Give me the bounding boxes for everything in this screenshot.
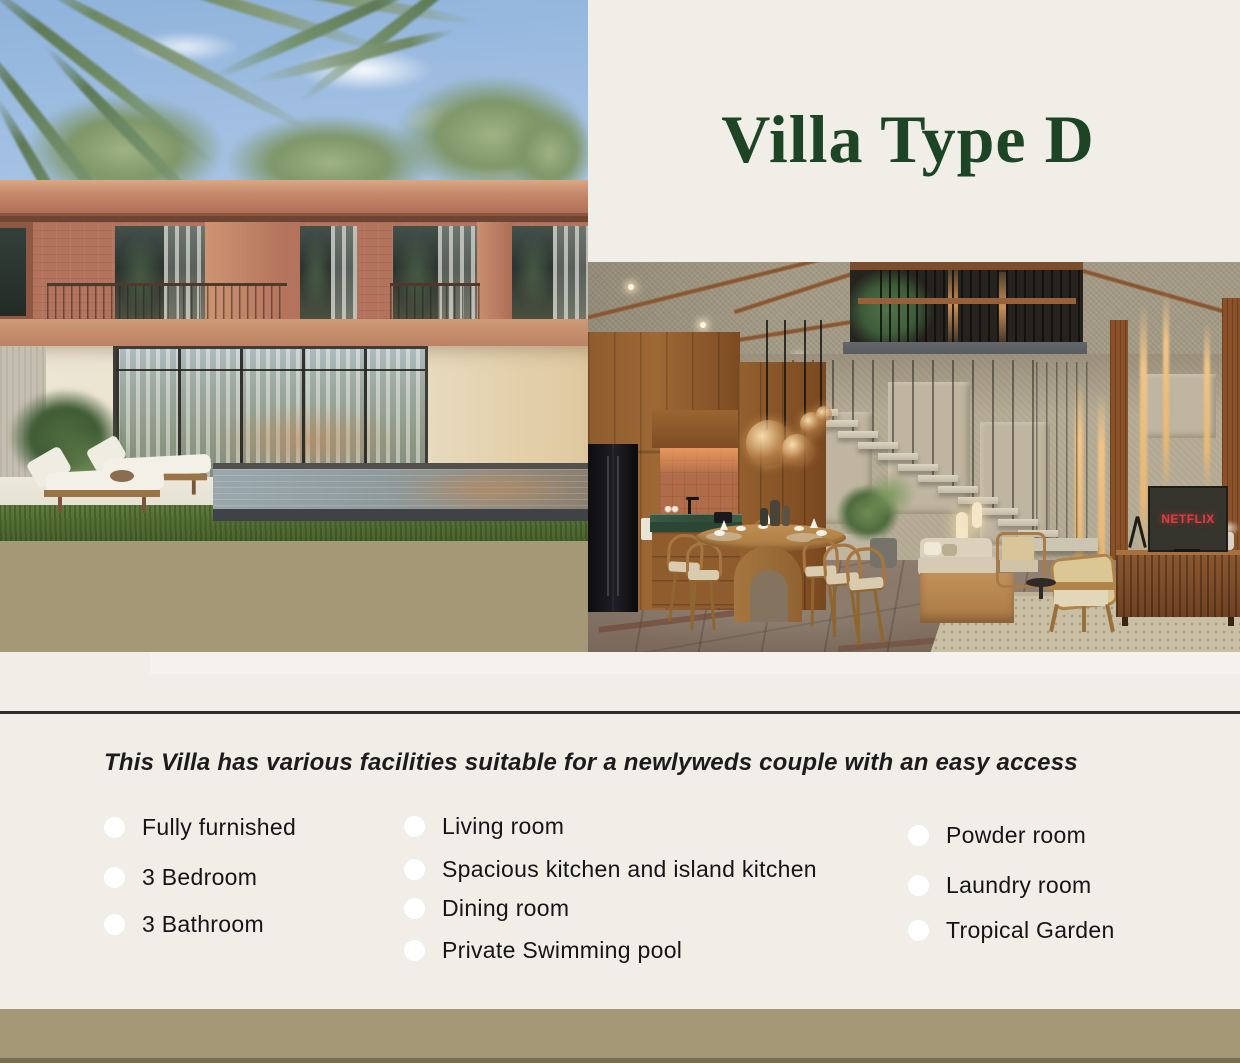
facility-label: Living room [442,813,564,840]
bullet-icon [908,920,929,941]
bullet-icon [908,875,929,896]
kitchen-upper-cabinet [652,410,738,448]
bullet-icon [104,817,125,838]
dinnerware [736,526,746,531]
balcony-railing [390,283,480,322]
stair-step [898,464,938,471]
bullet-icon [908,825,929,846]
ceiling-spotlight [700,322,706,328]
sofa-pillow [924,542,941,555]
facility-label: Powder room [946,822,1086,849]
folded-napkin [810,518,818,528]
dinnerware [816,530,827,536]
curtain [553,226,588,319]
facility-label: Tropical Garden [946,917,1115,944]
bottom-bar-edge [0,1058,1240,1063]
rattan-armchair [1044,554,1124,634]
stair-cable [972,360,974,501]
swimming-pool [213,463,588,521]
facility-item: Spacious kitchen and island kitchen [404,857,817,881]
stair-step [978,508,1018,515]
stair-cable [1032,360,1034,534]
stair-cable [1012,360,1014,523]
mezzanine-opening [850,262,1083,354]
stair-step [938,486,978,493]
mezzanine-beam [850,262,1083,270]
lounger-leg [58,497,62,513]
bullet-icon [104,914,125,935]
facility-item: 3 Bedroom [104,865,257,889]
coffee-cups [664,506,680,513]
bullet-icon [404,898,425,919]
palm-reflection [302,233,329,311]
table-vase [760,508,768,526]
stair-step [838,431,878,438]
flat-roof [0,180,588,217]
pendant-cable [820,320,822,412]
stair-cable-cluster [1036,362,1090,544]
armchair-seat [1054,590,1108,606]
page-title: Villa Type D [648,104,1168,175]
folded-napkin [720,520,728,530]
potted-plant-foliage [864,472,916,518]
exterior-villa-photo [0,0,588,541]
table-vase [770,500,780,526]
fridge-handle [607,456,609,596]
facility-item: 3 Bathroom [104,912,264,936]
lounger-leg [192,480,196,494]
facility-label: Private Swimming pool [442,937,682,964]
fridge-handle [617,456,619,596]
console-body [1116,555,1240,617]
coffee-table-leg [1039,585,1043,599]
netflix-logo: NETFLIX [1161,512,1215,526]
wall-light-strip [1163,292,1169,492]
facility-label: 3 Bathroom [142,911,264,938]
facility-label: Spacious kitchen and island kitchen [442,856,817,883]
stair-step [858,442,898,449]
facility-item: Private Swimming pool [404,938,682,962]
bullet-icon [404,940,425,961]
facility-item: Dining room [404,896,569,920]
armchair-leg [1082,606,1086,632]
wall-light-strip [1140,302,1147,560]
lounger-frame [44,490,160,497]
upper-window [300,226,357,319]
dining-chair [686,542,720,634]
dinnerware [794,526,804,531]
balcony-railing [47,283,287,322]
armchair-leg [1105,604,1115,632]
tv-console [1116,550,1240,626]
wall-light-strip [1204,322,1210,492]
fridge-door-seam [612,444,614,612]
divider-line [0,711,1240,714]
light-band [150,652,1240,674]
facility-label: Fully furnished [142,814,296,841]
stair-step [998,519,1038,526]
pendant-light [816,406,832,422]
dining-chair [844,546,890,650]
title-panel: Villa Type D [648,104,1168,175]
mezzanine-handrail [858,298,1076,304]
facade-fin-wall [477,222,512,319]
side-table [110,470,134,482]
refrigerator [588,444,638,612]
facility-label: 3 Bedroom [142,864,257,891]
pendant-cable [784,320,786,440]
pendant-light [782,434,812,464]
facility-item: Fully furnished [104,815,296,839]
stair-cable [912,360,914,468]
facilities-intro: This Villa has various facilities suitab… [104,749,1078,777]
palm-reflection [515,233,551,311]
facility-item: Powder room [908,823,1086,847]
brochure-page: Villa Type D [0,0,1240,1063]
stair-cable [932,360,934,479]
armchair-leg [1049,604,1059,632]
kitchen-faucet [688,498,691,515]
bullet-icon [104,867,125,888]
bottom-bar [0,1009,1240,1063]
armchair-seat [1000,560,1038,572]
kitchen-faucet-spout [686,497,699,500]
table-vase [782,506,790,526]
facility-label: Laundry room [946,872,1092,899]
stair-cable [952,360,954,490]
console-leg [1228,617,1234,626]
curtain [331,226,357,319]
kitchen-backsplash [660,448,738,514]
facility-item: Tropical Garden [908,918,1115,942]
lounger-leg [142,497,146,513]
railing-rods [880,270,1080,350]
stair-step [878,453,918,460]
stair-step [918,475,958,482]
facility-item: Living room [404,814,564,838]
floor-lamp [972,502,982,528]
tan-strip [0,541,588,652]
upper-window [512,226,588,319]
ceiling-spotlight [628,284,634,290]
pedestal-arch-cutout [750,570,788,622]
dinnerware [714,530,725,536]
pendant-cable [766,320,768,430]
sofa-pillow [942,544,957,556]
bullet-icon [404,816,425,837]
stair-cable [992,360,994,512]
facility-label: Dining room [442,895,569,922]
pendant-cable [804,320,806,420]
lounge-chair [16,448,176,514]
tv-screen: NETFLIX [1148,486,1228,552]
facility-item: Laundry room [908,873,1092,897]
left-wing-window [0,228,26,316]
tv-stand [1174,549,1200,552]
console-leg [1122,617,1128,626]
interior-living-photo: NETFLIX [588,262,1240,652]
bullet-icon [404,859,425,880]
